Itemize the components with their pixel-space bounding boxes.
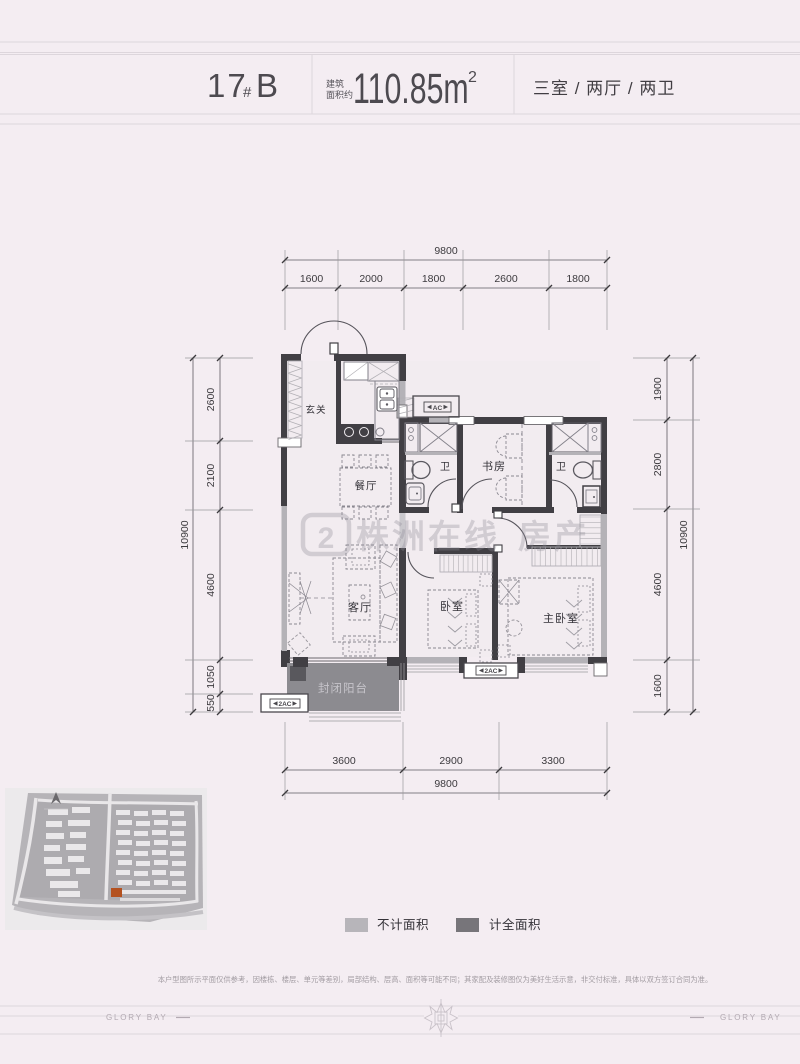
svg-text:2100: 2100	[205, 464, 217, 488]
svg-text:3300: 3300	[541, 755, 565, 767]
svg-text:9800: 9800	[434, 778, 458, 790]
svg-text:10900: 10900	[678, 520, 690, 549]
svg-text:10900: 10900	[179, 520, 191, 549]
svg-text:封闭阳台: 封闭阳台	[318, 681, 368, 695]
svg-text:面积约: 面积约	[326, 89, 353, 100]
svg-text:#: #	[243, 84, 252, 101]
svg-text:1800: 1800	[566, 273, 590, 285]
svg-text:4600: 4600	[205, 573, 217, 597]
svg-text:1600: 1600	[300, 273, 324, 285]
svg-text:AC: AC	[433, 405, 443, 412]
svg-text:2AC: 2AC	[484, 668, 497, 675]
svg-text:GLORY BAY: GLORY BAY	[720, 1013, 782, 1022]
svg-text:2000: 2000	[359, 273, 383, 285]
svg-text:9800: 9800	[434, 245, 458, 257]
svg-text:卫: 卫	[556, 462, 566, 473]
svg-text:B: B	[256, 67, 278, 104]
svg-text:1600: 1600	[652, 674, 664, 698]
svg-text:1900: 1900	[652, 377, 664, 401]
svg-text:3600: 3600	[332, 755, 356, 767]
svg-text:1050: 1050	[205, 665, 217, 689]
svg-text:餐厅: 餐厅	[355, 479, 378, 492]
svg-text:GLORY BAY: GLORY BAY	[106, 1013, 168, 1022]
svg-text:三室 / 两厅 / 两卫: 三室 / 两厅 / 两卫	[533, 79, 675, 98]
svg-text:书房: 书房	[482, 460, 506, 473]
svg-text:110.85m: 110.85m	[353, 64, 469, 113]
svg-text:1800: 1800	[422, 273, 446, 285]
svg-text:卧室: 卧室	[440, 599, 464, 613]
svg-text:计全面积: 计全面积	[489, 917, 541, 932]
svg-text:2600: 2600	[494, 273, 518, 285]
svg-text:客厅: 客厅	[348, 600, 372, 614]
svg-text:株洲在线: 株洲在线	[356, 518, 500, 555]
svg-text:550: 550	[205, 694, 217, 712]
svg-text:建筑: 建筑	[326, 78, 344, 89]
svg-text:不计面积: 不计面积	[377, 918, 429, 932]
svg-text:卫: 卫	[440, 462, 450, 473]
svg-text:玄关: 玄关	[305, 404, 326, 416]
svg-text:4600: 4600	[652, 573, 664, 597]
svg-text:2800: 2800	[652, 453, 664, 477]
svg-text:2: 2	[318, 522, 335, 555]
svg-text:主卧室: 主卧室	[543, 611, 579, 625]
svg-text:17: 17	[207, 67, 248, 104]
svg-text:房产: 房产	[518, 518, 590, 555]
svg-text:2AC: 2AC	[278, 701, 291, 708]
svg-text:2: 2	[468, 69, 477, 86]
svg-text:2900: 2900	[439, 755, 463, 767]
svg-text:本户型图所示平面仅供参考，因楼栋、楼层、单元等差别，局部结构: 本户型图所示平面仅供参考，因楼栋、楼层、单元等差别，局部结构、层高、面积等可能不…	[158, 975, 713, 984]
svg-text:2600: 2600	[205, 388, 217, 412]
